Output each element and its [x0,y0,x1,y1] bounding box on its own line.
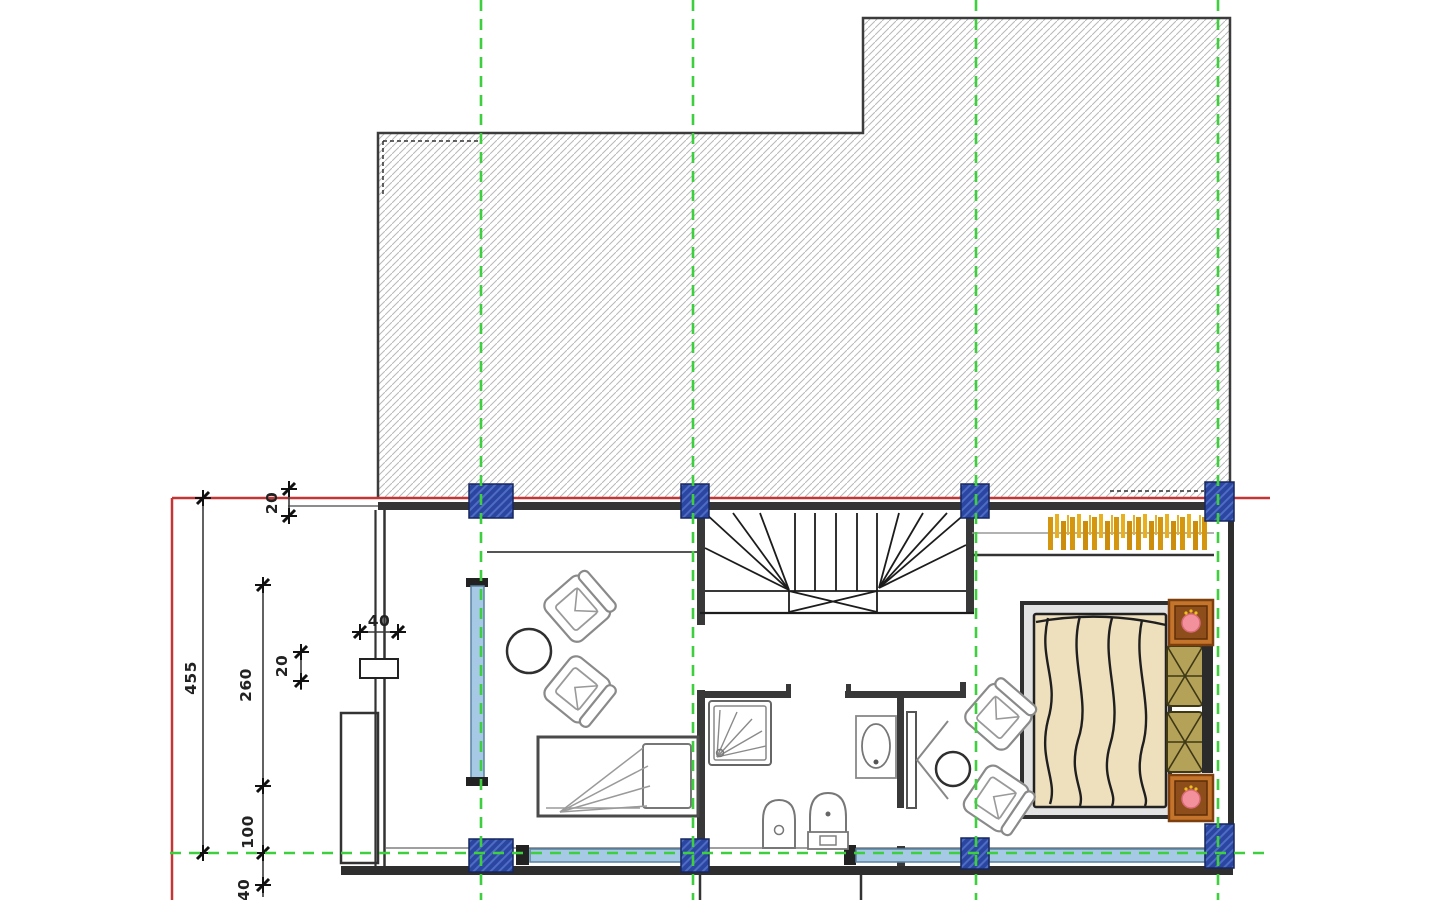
living-room-furniture [507,567,698,816]
wall-bath-top-right [845,691,905,698]
lamp [1182,614,1200,632]
column [681,839,709,872]
dim-label-100: 100 [239,815,257,849]
dim-label-40-width: 40 [368,612,391,630]
wardrobe-clothes [1048,514,1208,552]
wardrobe [972,514,1214,555]
armchair [541,567,619,645]
toilet [808,793,848,849]
round-table [507,629,551,673]
shower [709,701,771,765]
wall-living-hall-upper [697,510,705,625]
window-cap [466,777,488,786]
door-jamb [846,684,851,698]
dim-label-260: 260 [237,668,255,702]
door-jamb [786,684,791,698]
stair-fan-left [705,513,789,590]
staircase [700,513,974,613]
dim-label-20-top: 20 [263,492,281,515]
wall-bath-right [897,698,904,808]
column [1205,482,1234,521]
window-bottom-3 [989,849,1205,862]
roof-slab-hatch [378,18,1230,497]
column [681,484,709,518]
armchair [541,653,619,731]
detail-box [360,659,398,678]
bathroom-fixtures [709,701,896,849]
daybed [538,737,698,816]
stair-fan-right [879,513,966,588]
lamp [1182,790,1200,808]
wall-bath-top-left [705,691,787,698]
column [1205,824,1234,868]
column [469,484,513,518]
floor-plan-drawing: 455 260 100 40 20 20 40 [0,0,1440,900]
door-jamb [960,682,966,698]
dim-label-20-mid: 20 [273,655,291,678]
window-cap [516,845,529,865]
floor-plan-canvas: 455 260 100 40 20 20 40 [0,0,1440,900]
nightstand-top [1169,600,1213,645]
sink [856,716,896,778]
bedroom-furniture [907,600,1213,839]
stair-treads [795,513,877,591]
window-bottom-1 [530,849,681,862]
dim-label-40-bottom: 40 [235,879,253,900]
bidet [763,800,795,848]
bed-headboard [1202,645,1213,773]
nightstand-bottom [1169,775,1213,821]
window-bottom-2 [856,849,961,862]
pilaster [341,713,378,863]
stair-cross [789,591,877,613]
wall-bedroom-entry [903,691,966,698]
round-table [936,752,970,786]
dim-label-455: 455 [182,661,200,695]
wall-stair-right [966,510,974,613]
wall-right [1228,497,1234,867]
bed-pillows [1167,646,1203,772]
column [469,839,513,872]
